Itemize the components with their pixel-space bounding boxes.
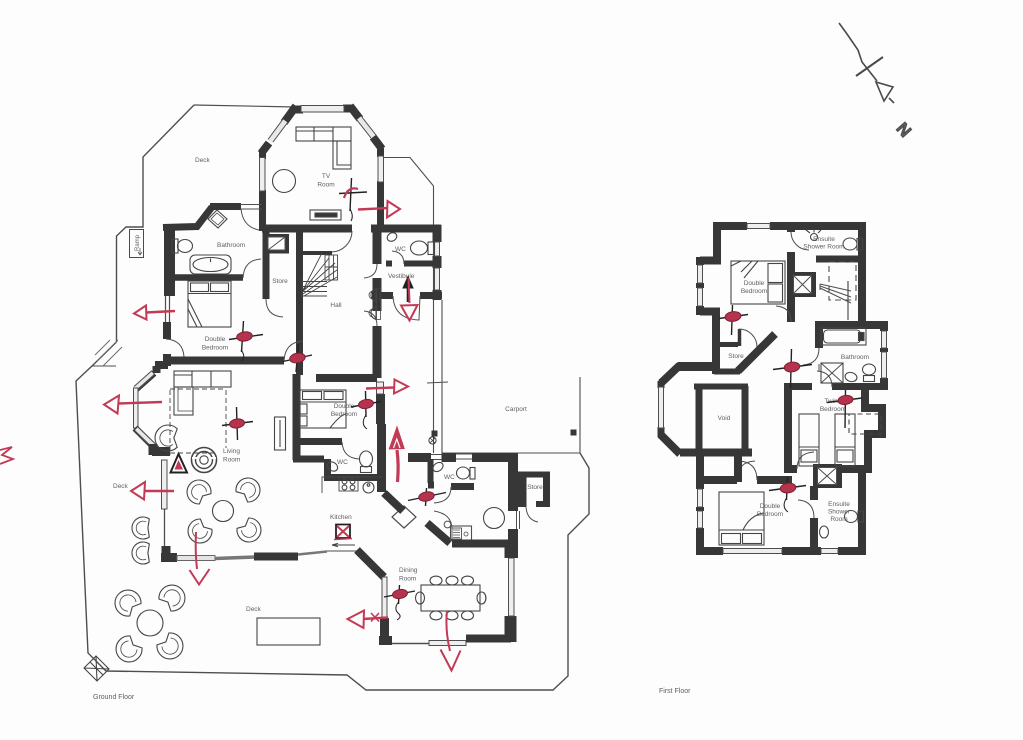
svg-text:Bedroom: Bedroom (820, 406, 846, 413)
svg-text:WC: WC (395, 246, 406, 253)
svg-text:WC: WC (444, 474, 455, 481)
svg-text:First Floor: First Floor (659, 688, 691, 695)
svg-text:Room: Room (399, 576, 416, 583)
svg-text:Bedroom: Bedroom (757, 511, 783, 518)
svg-text:Double: Double (760, 503, 781, 510)
svg-text:Room: Room (317, 182, 334, 189)
svg-text:Bedroom: Bedroom (202, 345, 228, 352)
svg-text:Store: Store (527, 484, 543, 491)
svg-text:TV: TV (322, 173, 331, 180)
svg-text:Ensuite: Ensuite (813, 236, 835, 243)
svg-text:Deck: Deck (113, 483, 129, 490)
svg-text:Store: Store (272, 278, 288, 285)
svg-text:Ground Floor: Ground Floor (93, 694, 135, 701)
svg-text:Bathroom: Bathroom (217, 242, 245, 249)
svg-text:Dining: Dining (399, 567, 418, 574)
svg-text:Bedroom: Bedroom (331, 411, 357, 418)
svg-text:Bathroom: Bathroom (841, 354, 869, 361)
svg-text:Ensuite: Ensuite (828, 501, 850, 508)
svg-text:Vestibule: Vestibule (388, 273, 415, 280)
svg-text:Store: Store (728, 353, 744, 360)
svg-text:Double: Double (205, 336, 226, 343)
svg-text:Shower: Shower (828, 509, 851, 516)
svg-text:Hall: Hall (330, 302, 342, 309)
svg-text:WC: WC (337, 459, 348, 466)
svg-text:Kitchen: Kitchen (330, 514, 352, 521)
svg-text:Living: Living (223, 448, 240, 455)
svg-text:Void: Void (718, 415, 731, 422)
svg-text:Carport: Carport (505, 406, 527, 413)
svg-text:Shower Room: Shower Room (803, 244, 844, 251)
svg-text:Room: Room (223, 457, 240, 464)
svg-text:Double: Double (744, 280, 765, 287)
svg-text:Room: Room (830, 516, 847, 523)
svg-text:Bedroom: Bedroom (741, 288, 767, 295)
svg-text:Deck: Deck (195, 157, 211, 164)
svg-text:Deck: Deck (246, 606, 262, 613)
